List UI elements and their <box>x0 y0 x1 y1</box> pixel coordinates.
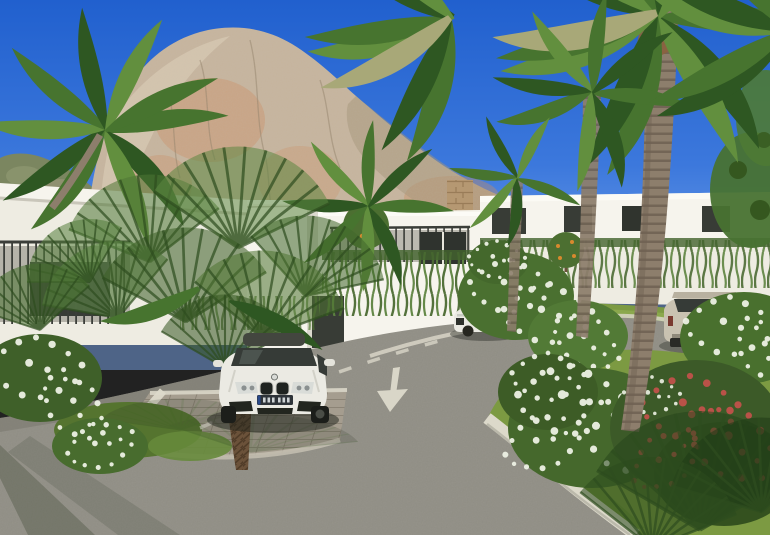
scene-svg <box>0 0 770 535</box>
bumper-intake-center <box>257 408 293 414</box>
license-plate <box>257 395 293 405</box>
car-roof <box>243 333 305 346</box>
wheel-left <box>221 406 236 423</box>
headlight-right <box>291 382 314 394</box>
brand-roundel <box>272 374 278 380</box>
side-mirror-left <box>213 360 223 367</box>
architectural-render <box>0 0 770 535</box>
side-mirror-right <box>324 359 335 366</box>
